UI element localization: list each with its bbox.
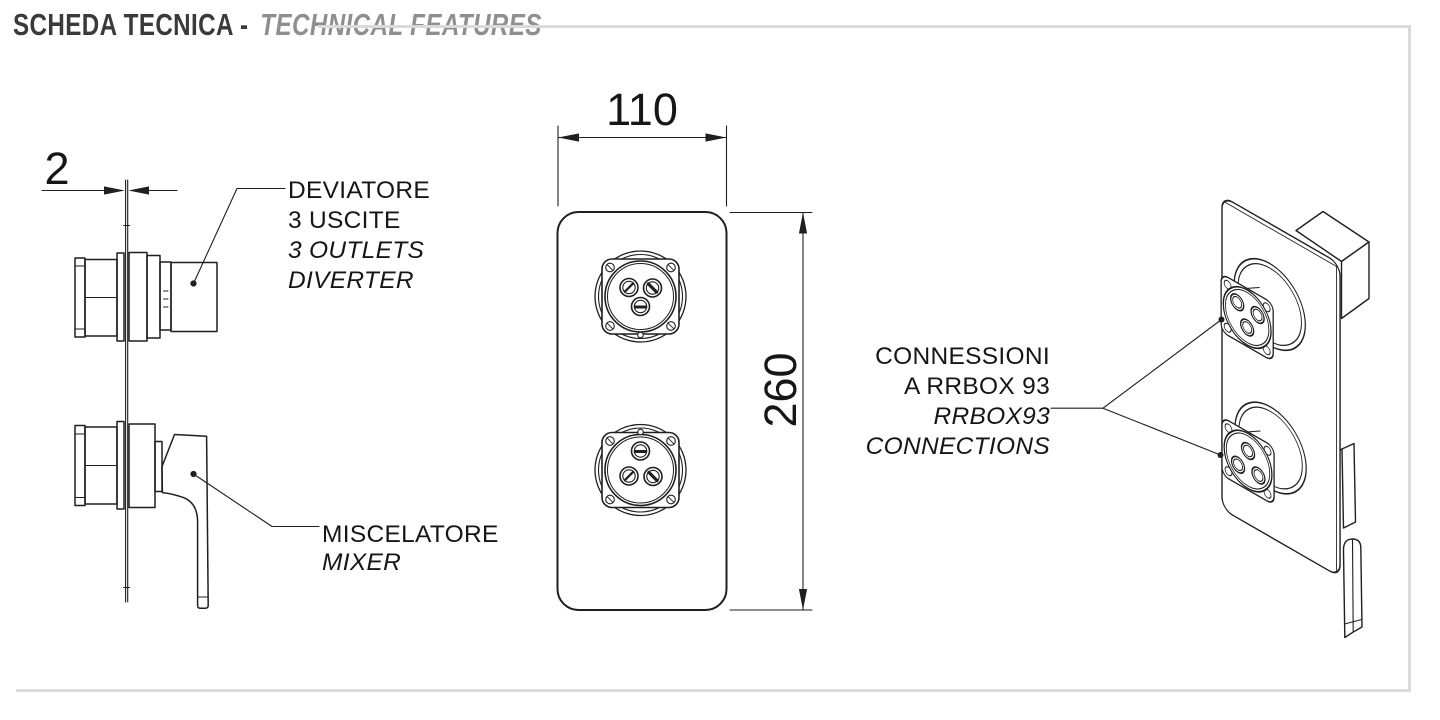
diverter-label: DEVIATORE 3 USCITE 3 OUTLETS DIVERTER	[288, 176, 430, 296]
technical-drawing	[0, 0, 1440, 720]
technical-sheet-page: SCHEDA TECNICA - TECHNICAL FEATURES	[0, 0, 1440, 720]
mixer-label: MISCELATORE MIXER	[322, 521, 499, 577]
side-view-drawing	[42, 180, 319, 608]
dimension-thickness-value: 2	[37, 143, 77, 195]
mixer-leader	[190, 471, 319, 527]
side-view-diverter	[75, 253, 217, 342]
connections-label: CONNESSIONI A RRBOX 93 RRBOX93 CONNECTIO…	[850, 342, 1050, 462]
connections-leader	[1051, 317, 1225, 459]
connections-label-line-it1: CONNESSIONI	[850, 342, 1050, 372]
diverter-label-line-en2: DIVERTER	[288, 266, 430, 296]
diverter-leader	[190, 189, 285, 287]
dimension-height-value: 260	[758, 335, 804, 445]
perspective-view-drawing	[1051, 196, 1369, 638]
connections-label-line-it2: A RRBOX 93	[850, 372, 1050, 402]
diverter-label-line-it2: 3 USCITE	[288, 206, 430, 236]
connections-label-line-en1: RRBOX93	[850, 402, 1050, 432]
width-dimension	[558, 126, 727, 206]
diverter-label-line-it1: DEVIATORE	[288, 176, 430, 206]
side-view-mixer	[75, 422, 208, 609]
diverter-label-line-en1: 3 OUTLETS	[288, 236, 430, 266]
front-upper-flange	[595, 251, 686, 342]
mixer-label-line-en: MIXER	[322, 549, 499, 577]
front-lower-flange	[595, 425, 686, 516]
dimension-width-value: 110	[592, 84, 692, 136]
perspective-plate	[1222, 196, 1340, 577]
mixer-label-line-it: MISCELATORE	[322, 521, 499, 549]
connections-label-line-en2: CONNECTIONS	[850, 432, 1050, 462]
